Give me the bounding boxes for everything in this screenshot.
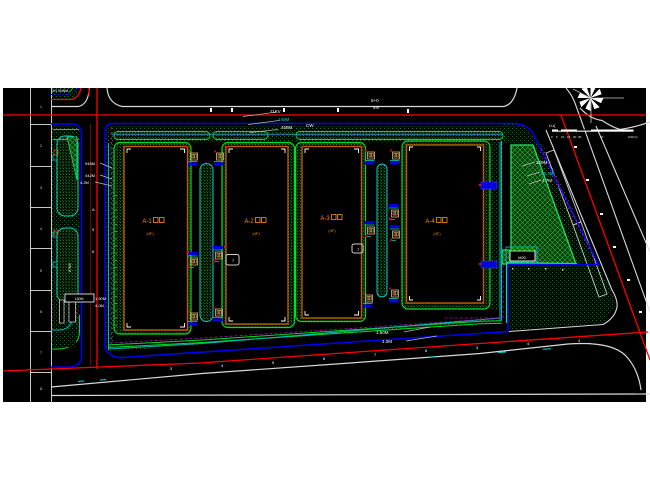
svg-text:10: 10	[561, 135, 565, 139]
svg-text:4: 4	[40, 227, 42, 231]
svg-text:87M3: 87M3	[68, 263, 72, 272]
svg-text:1.50M: 1.50M	[95, 296, 106, 301]
svg-text:(4F): (4F)	[146, 231, 154, 236]
svg-text:442M: 442M	[85, 173, 95, 178]
svg-text:459M: 459M	[281, 125, 293, 130]
svg-text:948M: 948M	[85, 161, 95, 166]
svg-text:XN XNNM: XN XNNM	[52, 89, 68, 93]
svg-text:2: 2	[40, 144, 42, 148]
svg-text:A-3: A-3	[320, 216, 330, 222]
svg-text:1.50M: 1.50M	[376, 330, 389, 335]
svg-text:4.0M: 4.0M	[382, 339, 392, 344]
svg-text:M20: M20	[518, 255, 527, 260]
svg-text:140M: 140M	[278, 117, 290, 122]
svg-text:6: 6	[40, 310, 42, 314]
svg-text:30: 30	[578, 135, 582, 139]
svg-text:11KV: 11KV	[270, 109, 281, 114]
svg-text:5+0: 5+0	[371, 98, 379, 103]
svg-text:7: 7	[40, 351, 42, 355]
svg-text:(4F): (4F)	[433, 231, 441, 236]
svg-text:LU(: LU(	[549, 123, 556, 128]
svg-text:A: A	[92, 207, 95, 212]
svg-text:50: 50	[600, 135, 604, 139]
svg-text:100(m): 100(m)	[628, 135, 638, 139]
svg-text:(4F): (4F)	[328, 228, 336, 233]
svg-text:3: 3	[40, 186, 42, 190]
svg-text:4.0M: 4.0M	[95, 303, 104, 308]
svg-text:CW: CW	[306, 123, 314, 128]
svg-text:15: 15	[567, 135, 571, 139]
svg-text:5: 5	[40, 269, 42, 273]
svg-text:4.7M: 4.7M	[542, 178, 552, 183]
svg-text:A-4: A-4	[425, 219, 435, 225]
svg-text:140M: 140M	[536, 160, 548, 165]
svg-text:A-1: A-1	[142, 219, 152, 225]
svg-text:4.2M: 4.2M	[80, 180, 89, 185]
svg-text:A-2: A-2	[244, 219, 254, 225]
svg-text:20: 20	[573, 135, 577, 139]
svg-text:4Φ: 4Φ	[373, 105, 380, 110]
svg-text:94.4M: 94.4M	[541, 171, 554, 176]
svg-text:8: 8	[40, 387, 42, 391]
svg-text:130M: 130M	[75, 297, 84, 301]
svg-text:(4F): (4F)	[252, 231, 260, 236]
svg-text:1: 1	[40, 105, 42, 109]
